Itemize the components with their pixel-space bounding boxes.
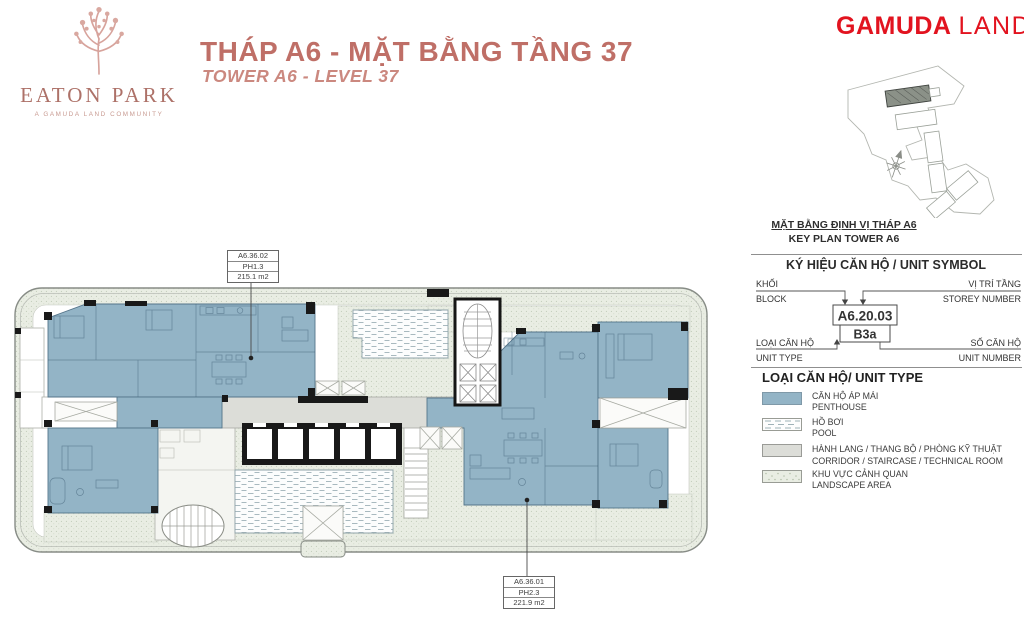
keyplan-tower-a6-highlight: [885, 84, 941, 107]
divider: [751, 254, 1022, 255]
label-storey-vi: VỊ TRÍ TẦNG: [968, 279, 1021, 289]
oval-stair: [162, 505, 224, 547]
unit-b-lower-wing: [598, 428, 668, 508]
label-number-en: UNIT NUMBER: [959, 353, 1022, 363]
legend-item-landscape: KHU VỰC CẢNH QUAN LANDSCAPE AREA: [762, 469, 1020, 493]
legend-title: LOẠI CĂN HỘ/ UNIT TYPE: [762, 370, 923, 385]
label-block-vi: KHỐI: [756, 278, 778, 289]
legend-en: POOL: [812, 428, 844, 439]
unit-area: 221.9 m2: [504, 597, 554, 608]
unit-a-upper: [48, 304, 315, 397]
legend-item-penthouse: CĂN HỘ ÁP MÁI PENTHOUSE: [762, 391, 1020, 415]
pool-swatch: [762, 418, 802, 431]
legend-en: PENTHOUSE: [812, 402, 878, 413]
unit-type: PH1.3: [228, 261, 278, 272]
penthouse-swatch: [762, 392, 802, 405]
unit-label-a63601: A6.36.01 PH2.3 221.9 m2: [503, 576, 555, 609]
unit-a-hall: [117, 397, 222, 428]
label-type-en: UNIT TYPE: [756, 353, 803, 363]
legend-vi: CĂN HỘ ÁP MÁI: [812, 391, 878, 402]
leader-dot-a: [249, 356, 254, 361]
legend-en: CORRIDOR / STAIRCASE / TECHNICAL ROOM: [812, 455, 1003, 467]
keyplan-caption-en: KEY PLAN TOWER A6: [752, 233, 936, 245]
label-type-vi: LOẠI CĂN HỘ: [756, 338, 814, 348]
label-number-vi: SỐ CĂN HỘ: [970, 337, 1021, 348]
sample-unit-type: B3a: [854, 328, 878, 342]
divider: [751, 367, 1022, 368]
unit-area: 215.1 m2: [228, 271, 278, 282]
keyplan-caption: MẶT BẰNG ĐỊNH VỊ THÁP A6 KEY PLAN TOWER …: [752, 219, 936, 245]
legend-item-corridor: HÀNH LANG / THANG BỘ / PHÒNG KỸ THUẬT CO…: [762, 443, 1020, 467]
legend-vi: HỒ BƠI: [812, 417, 844, 428]
legend-item-pool: HỒ BƠI POOL: [762, 417, 1020, 441]
legend-vi: KHU VỰC CẢNH QUAN: [812, 469, 908, 480]
label-storey-en: STOREY NUMBER: [943, 294, 1022, 304]
corridor-swatch: [762, 444, 802, 457]
unit-symbol-diagram: A6.20.03 B3a KHỐI BLOCK VỊ TRÍ TẦNG STOR…: [753, 272, 1024, 366]
unit-label-a63602: A6.36.02 PH1.3 215.1 m2: [227, 250, 279, 283]
legend-en: LANDSCAPE AREA: [812, 480, 908, 491]
leader-dot-b: [525, 498, 530, 503]
unit-symbol-title: KÝ HIỆU CĂN HỘ / UNIT SYMBOL: [755, 258, 1017, 272]
side-stair: [404, 448, 428, 518]
page: EATON PARK A GAMUDA LAND COMMUNITY THÁP …: [0, 0, 1024, 641]
label-block-en: BLOCK: [756, 294, 787, 304]
elevator-bank: [242, 423, 402, 465]
legend-vi: HÀNH LANG / THANG BỘ / PHÒNG KỸ THUẬT: [812, 443, 1003, 455]
unit-code: A6.36.02: [228, 251, 278, 261]
unit-type: PH2.3: [504, 587, 554, 598]
unit-code: A6.36.01: [504, 577, 554, 587]
central-stair-shaft: [455, 299, 500, 405]
keyplan-caption-vi: MẶT BẰNG ĐỊNH VỊ THÁP A6: [752, 219, 936, 231]
landscape-swatch: [762, 470, 802, 483]
pool-upper: [353, 310, 448, 358]
sample-unit-code: A6.20.03: [838, 309, 893, 324]
key-plan: [788, 60, 1018, 218]
